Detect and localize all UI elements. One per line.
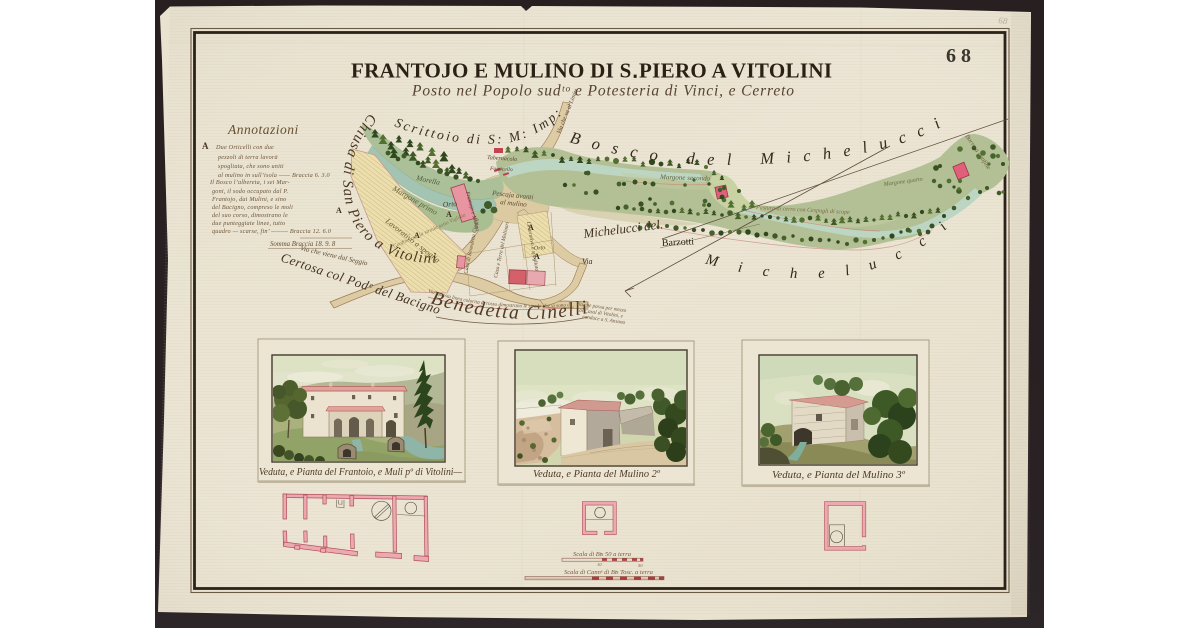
svg-text:10: 10 <box>597 562 602 567</box>
svg-text:Veduta, e Pianta del Frantoio,: Veduta, e Pianta del Frantoio, e Muli pº… <box>259 467 462 478</box>
svg-text:A: A <box>202 141 209 151</box>
svg-text:Scala di Bʦ 50 a terra: Scala di Bʦ 50 a terra <box>573 551 631 558</box>
svg-text:Veduta, e Pianta del Mulino 3º: Veduta, e Pianta del Mulino 3º <box>772 470 906 481</box>
svg-text:FRANTOJO E MULINO DI S․PIERO A: FRANTOJO E MULINO DI S․PIERO A VITOLINI <box>351 59 832 83</box>
svg-text:Annotazioni: Annotazioni <box>227 122 299 137</box>
svg-text:Barzotti: Barzotti <box>662 236 695 249</box>
svg-text:Scala di Cannᵉ di Bʦ Tosc. a t: Scala di Cannᵉ di Bʦ Tosc. a terra <box>564 569 653 576</box>
svg-text:Posto nel Popolo sudᵗᵒ e Potes: Posto nel Popolo sudᵗᵒ e Potesteria di V… <box>411 83 794 100</box>
svg-text:68: 68 <box>946 45 976 67</box>
svg-text:Fonticello: Fonticello <box>489 166 513 173</box>
svg-text:Via: Via <box>582 257 593 266</box>
svg-text:Veduta, e Pianta del Mulino 2º: Veduta, e Pianta del Mulino 2º <box>533 469 661 480</box>
svg-text:50: 50 <box>638 563 643 568</box>
svg-text:Somma Braccia 18. 9. 8: Somma Braccia 18. 9. 8 <box>270 241 336 248</box>
svg-text:Orto: Orto <box>443 199 458 209</box>
